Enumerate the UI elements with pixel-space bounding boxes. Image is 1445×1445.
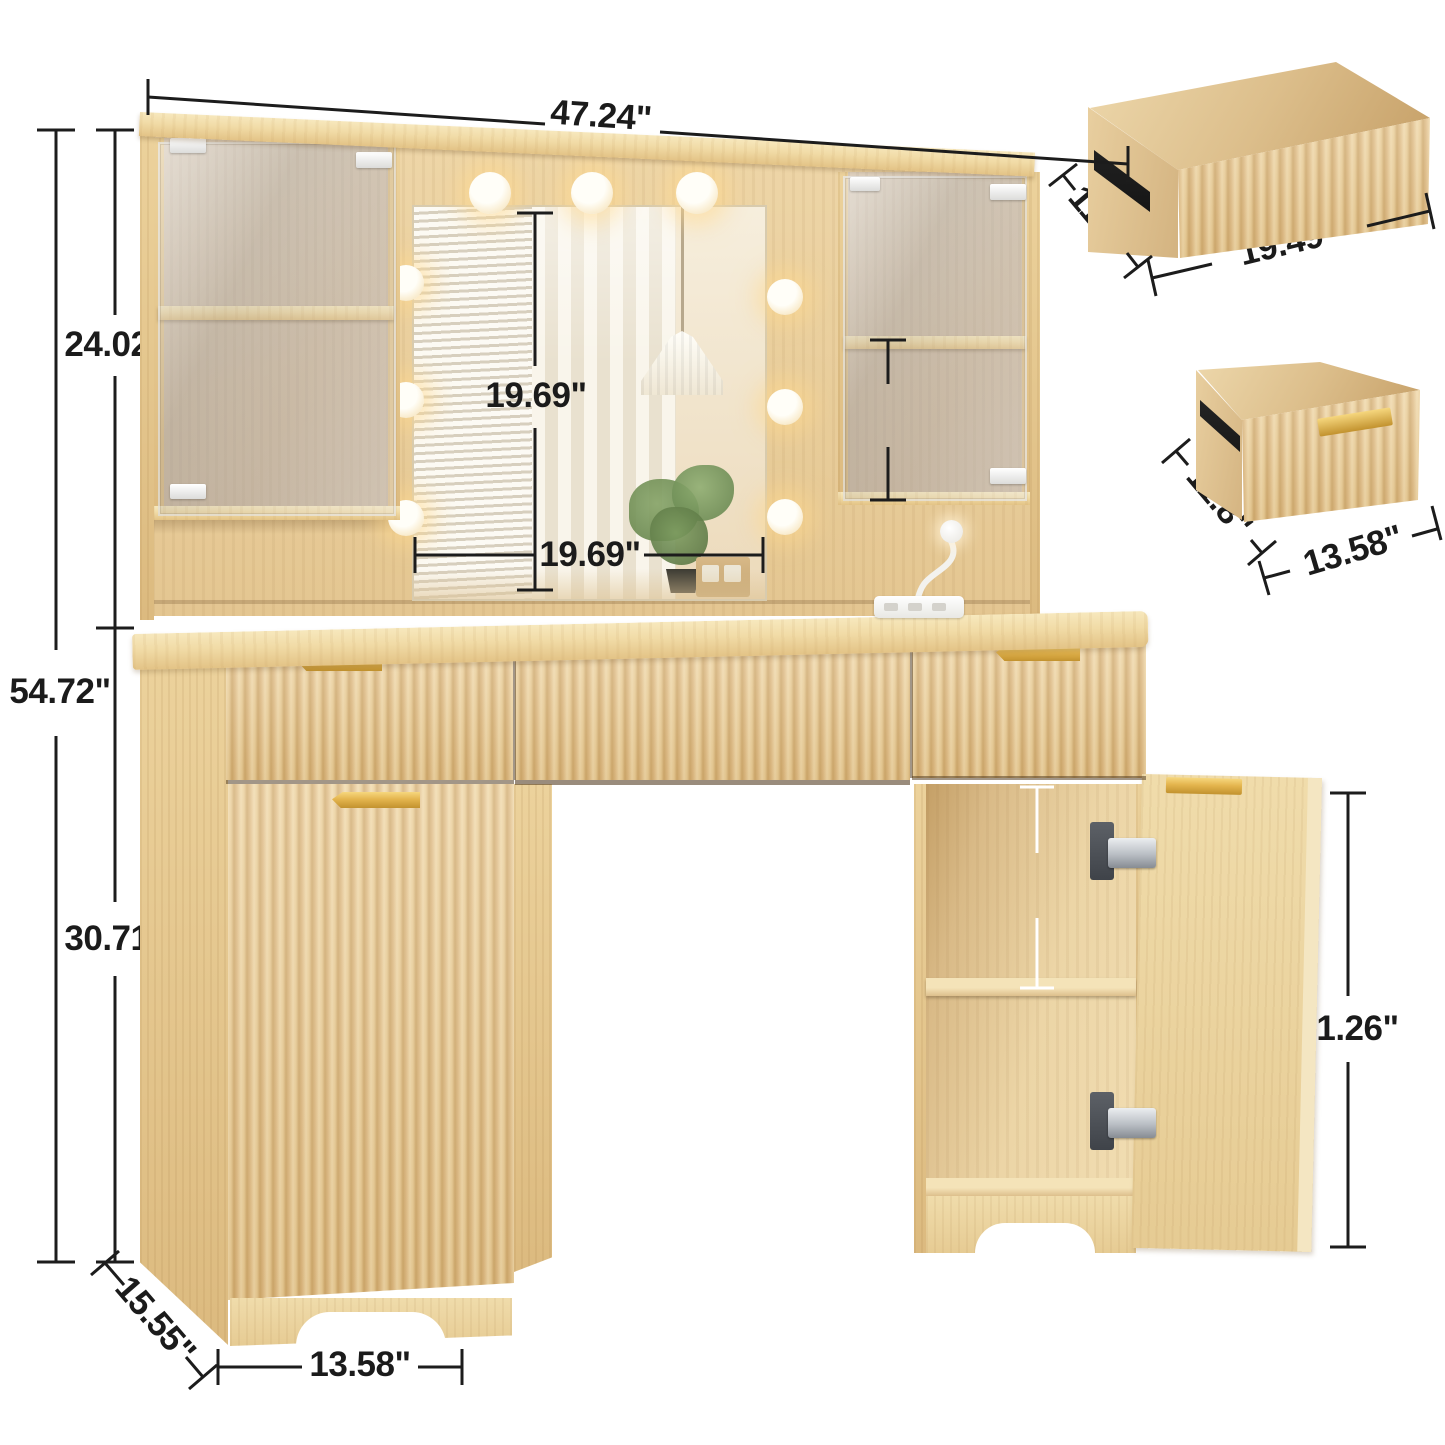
hutch-right-side-panel (1030, 172, 1040, 620)
power-plug (940, 520, 963, 543)
power-strip-socket (932, 603, 946, 611)
right-pedestal-floor (926, 1178, 1136, 1196)
dim-hutch-height (96, 130, 134, 628)
dim-label-mirror-width: 19.69" (539, 535, 640, 575)
left-door-hinge (170, 138, 206, 153)
led-bulb-top (571, 172, 613, 214)
left-glass-cabinet (152, 138, 400, 520)
power-strip (874, 596, 964, 618)
left-door-handle (332, 792, 420, 808)
left-pedestal-door (228, 784, 514, 1300)
right-glass-cabinet (838, 172, 1032, 505)
drawer-gap (513, 652, 516, 780)
led-bulb-top (676, 172, 718, 214)
led-bulb-right (767, 389, 803, 425)
right-pedestal-open-door (1131, 774, 1322, 1252)
door-hinge-arm (1108, 1108, 1156, 1138)
right-pedestal-left-wall (914, 784, 926, 1253)
left-door-hinge (356, 152, 392, 168)
left-pedestal-side-panel (140, 656, 228, 1345)
left-door-hinge (170, 484, 206, 499)
drawer-right (912, 642, 1146, 778)
pendant-cord (681, 207, 684, 335)
dim-label-mirror-height: 19.69" (485, 376, 586, 416)
right-door-hinge (990, 184, 1026, 200)
led-bulb-right (767, 499, 803, 535)
right-cabinet-glass-door (843, 176, 1027, 501)
right-door-hinge (850, 177, 880, 191)
hutch-left-side-panel (140, 128, 154, 620)
drawer-bottom-edge (226, 780, 514, 784)
drawer-gap (910, 648, 913, 778)
right-toe-kick-arch (975, 1223, 1095, 1253)
dim-label-base-cabinet-width: 13.58" (309, 1345, 410, 1385)
right-door-hinge (990, 468, 1026, 484)
door-top-bracket (1166, 777, 1242, 795)
right-pedestal-shelf (926, 978, 1136, 996)
left-toe-kick-arch (296, 1312, 446, 1346)
drawer-bottom-shadow (515, 780, 910, 785)
dim-label-drawer-small-width: 13.58" (1299, 517, 1407, 584)
product-dimension-diagram: 47.24" 24.02" 54.72" 30.71" 19.69" 19.69… (0, 0, 1445, 1445)
drawer-middle (515, 648, 910, 780)
dim-label-total-height: 54.72" (9, 672, 110, 712)
power-strip-socket (908, 603, 922, 611)
drawer-bottom-edge (912, 776, 1146, 780)
led-bulb-right (767, 279, 803, 315)
power-strip-socket (884, 603, 898, 611)
led-bulb-top (469, 172, 511, 214)
left-cubby-shadow (152, 520, 400, 534)
drawer-left (226, 652, 513, 780)
left-cabinet-glass-door (158, 142, 396, 516)
door-hinge-arm (1108, 838, 1156, 868)
knee-space-left-wall (514, 784, 552, 1272)
